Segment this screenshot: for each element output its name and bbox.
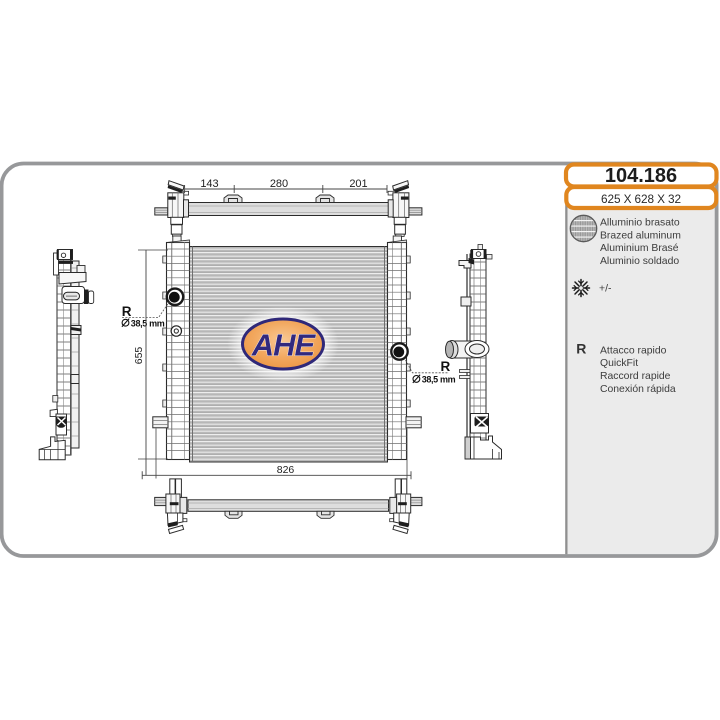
svg-text:R: R: [122, 304, 132, 319]
svg-text:Aluminio soldado: Aluminio soldado: [600, 256, 679, 267]
svg-text:826: 826: [277, 464, 295, 476]
svg-text:AHE: AHE: [251, 328, 317, 363]
svg-text:201: 201: [349, 178, 367, 190]
svg-text:Attacco rapido: Attacco rapido: [600, 345, 667, 356]
svg-text:Alluminio brasato: Alluminio brasato: [600, 218, 680, 229]
svg-text:655: 655: [133, 347, 145, 365]
svg-text:Aluminium Brasé: Aluminium Brasé: [600, 243, 679, 254]
svg-text:Raccord rapide: Raccord rapide: [600, 371, 671, 382]
svg-text:+/-: +/-: [599, 284, 611, 295]
svg-text:143: 143: [200, 178, 218, 190]
svg-text:38,5 mm: 38,5 mm: [131, 318, 165, 328]
svg-text:280: 280: [270, 178, 288, 190]
svg-text:R: R: [576, 340, 586, 356]
svg-text:R: R: [441, 359, 451, 374]
svg-text:38,5 mm: 38,5 mm: [422, 375, 456, 385]
svg-text:625 X 628 X 32: 625 X 628 X 32: [601, 192, 681, 206]
svg-text:Conexión rápida: Conexión rápida: [600, 384, 676, 395]
svg-text:104.186: 104.186: [605, 165, 677, 187]
svg-text:QuickFit: QuickFit: [600, 358, 638, 369]
svg-text:Brazed aluminum: Brazed aluminum: [600, 230, 681, 241]
